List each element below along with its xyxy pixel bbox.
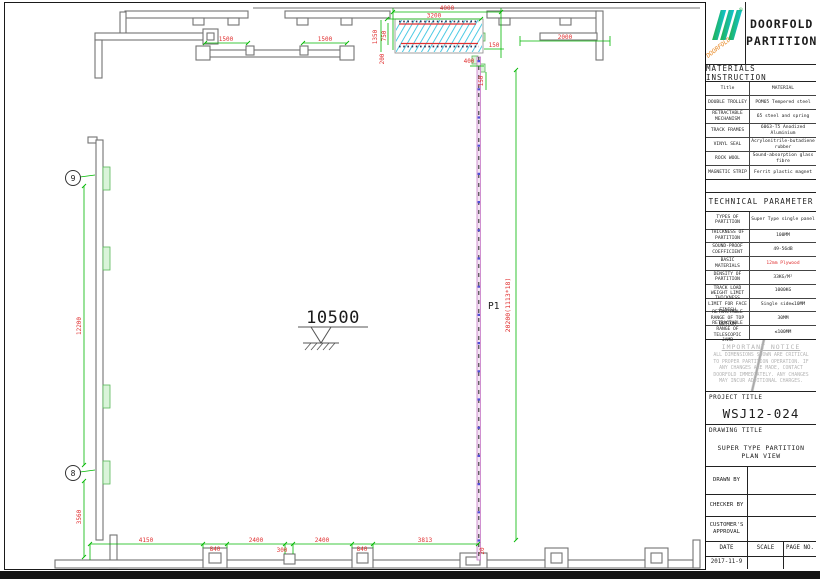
brand-line-2: PARTITION <box>746 33 817 50</box>
checker-by-value <box>748 495 816 516</box>
title-block: ® DOORFOLD DOORFOLD PARTITION MATERIALS … <box>705 2 816 570</box>
level-marker: 10500 <box>298 308 368 350</box>
col-material: MATERIAL <box>750 82 816 95</box>
walls <box>55 8 700 568</box>
grid-bubble-8: 8 <box>66 466 81 481</box>
drawn-by-row: DRAWN BY <box>706 467 816 495</box>
dim-1500-a: 1500 <box>219 36 234 43</box>
dimension-labels: 4000 3200 1500 1500 2000 1350 750 200 15… <box>76 5 573 555</box>
brand-header: ® DOORFOLD DOORFOLD PARTITION <box>706 2 816 65</box>
project-title-value: WSJ12-024 <box>706 404 816 425</box>
dim-750: 750 <box>381 30 388 41</box>
tech-row: RETRACTABLE RANGE OF TELESCOPIC JAMB ≤10… <box>706 325 816 339</box>
dimension-lines <box>80 8 610 560</box>
dim-12200: 12200 <box>76 317 83 335</box>
drawn-by-value <box>748 467 816 494</box>
project-title-label: PROJECT TITLE <box>706 392 816 404</box>
svg-text:9: 9 <box>71 174 76 183</box>
svg-text:8: 8 <box>71 469 76 478</box>
floor-plan-canvas: 4000 3200 1500 1500 2000 1350 750 200 15… <box>0 0 705 571</box>
drawing-title-label: DRAWING TITLE <box>706 425 816 437</box>
dim-4000: 4000 <box>440 5 455 12</box>
dim-840-b: 840 <box>357 546 368 553</box>
scale-value <box>748 557 784 569</box>
sheet-bottom-edge <box>0 571 820 579</box>
doorfold-logo: ® DOORFOLD <box>706 2 746 64</box>
materials-row: RETRACTABLE MECHANISM 65 steel and sprin… <box>706 109 816 123</box>
spacer <box>706 180 816 193</box>
important-notice: IMPORTANT NOTICE ALL DIMENSIONS SHOWN AR… <box>706 340 816 392</box>
tech-row: BASIC MATERIALS 12mm Plywood <box>706 256 816 270</box>
dim-1500-b: 1500 <box>318 36 333 43</box>
date-value: 2017-11-9 <box>706 557 748 569</box>
dim-840-a: 840 <box>210 546 221 553</box>
panel-stack <box>395 19 483 53</box>
footer-value-row: 2017-11-9 <box>706 557 816 569</box>
customer-approval-value <box>748 517 816 541</box>
dim-2400-a: 2400 <box>249 537 264 544</box>
notice-title: IMPORTANT NOTICE <box>710 343 812 351</box>
page-no-value <box>784 557 816 569</box>
materials-row: ROCK WOOL Sound-absorption glass fibre <box>706 151 816 165</box>
materials-header: MATERIALS INSTRUCTION <box>706 65 816 82</box>
materials-row: VINYL SEAL Acrylonitrile-butadiene rubbe… <box>706 137 816 151</box>
materials-row: MAGNETIC STRIP Ferrit plastic magnet <box>706 165 816 179</box>
technical-table: TYPES OF PARTITION Super Type single pan… <box>706 212 816 340</box>
dim-150-a: 150 <box>489 42 500 49</box>
svg-text:10500: 10500 <box>306 308 360 328</box>
dim-1350: 1350 <box>372 29 379 44</box>
dim-track-length: 20200(1113*18) <box>504 278 512 333</box>
dim-2000: 2000 <box>558 34 573 41</box>
notice-body: ALL DIMENSIONS SHOWN ARE CRITICAL TO PRO… <box>710 353 812 385</box>
dim-300: 300 <box>277 547 288 554</box>
logo-wordmark: DOORFOLD <box>706 36 732 60</box>
panel-ref-label: P1 <box>488 301 500 312</box>
materials-row: DOUBLE TROLLEY POM65 Tempered steel <box>706 95 816 109</box>
tech-row: SOUND-PROOF COEFFICIENT 49-56dB <box>706 242 816 256</box>
technical-header: TECHNICAL PARAMETER <box>706 193 816 212</box>
checker-by-row: CHECKER BY <box>706 495 816 517</box>
dim-3813: 3813 <box>418 537 433 544</box>
drawing-title-value: SUPER TYPE PARTITION PLAN VIEW <box>706 437 816 467</box>
dim-20: 20 <box>479 547 486 555</box>
dim-4150: 4150 <box>139 537 154 544</box>
brand-line-1: DOORFOLD <box>750 16 813 33</box>
cad-sheet: 4000 3200 1500 1500 2000 1350 750 200 15… <box>0 0 820 579</box>
dim-400: 400 <box>464 58 475 65</box>
dim-200: 200 <box>379 53 386 64</box>
partition-track <box>477 57 481 560</box>
tech-row: THICKNESS OF PARTITION 100MM <box>706 229 816 243</box>
registered-mark: ® <box>739 7 743 14</box>
grid-bubble-9: 9 <box>66 171 81 186</box>
materials-row: TRACK FRAMES 6063-T5 Anodized Aluminium <box>706 123 816 137</box>
footer-header-row: DATE SCALE PAGE NO. <box>706 542 816 557</box>
materials-table: Title MATERIAL DOUBLE TROLLEY POM65 Temp… <box>706 82 816 180</box>
tech-row: TYPES OF PARTITION Super Type single pan… <box>706 212 816 229</box>
tech-row: DENSITY OF PARTITION 33KG/M² <box>706 270 816 284</box>
col-title: Title <box>706 82 750 95</box>
customer-approval-row: CUSTOMER'S APPROVAL <box>706 517 816 542</box>
dim-3200: 3200 <box>427 13 442 20</box>
materials-header-row: Title MATERIAL <box>706 82 816 95</box>
dim-150-b: 150 <box>478 75 485 86</box>
dim-2400-b: 2400 <box>315 537 330 544</box>
dim-3560: 3560 <box>76 509 83 524</box>
wall-columns <box>103 33 485 484</box>
brand-name: DOORFOLD PARTITION <box>746 2 817 64</box>
